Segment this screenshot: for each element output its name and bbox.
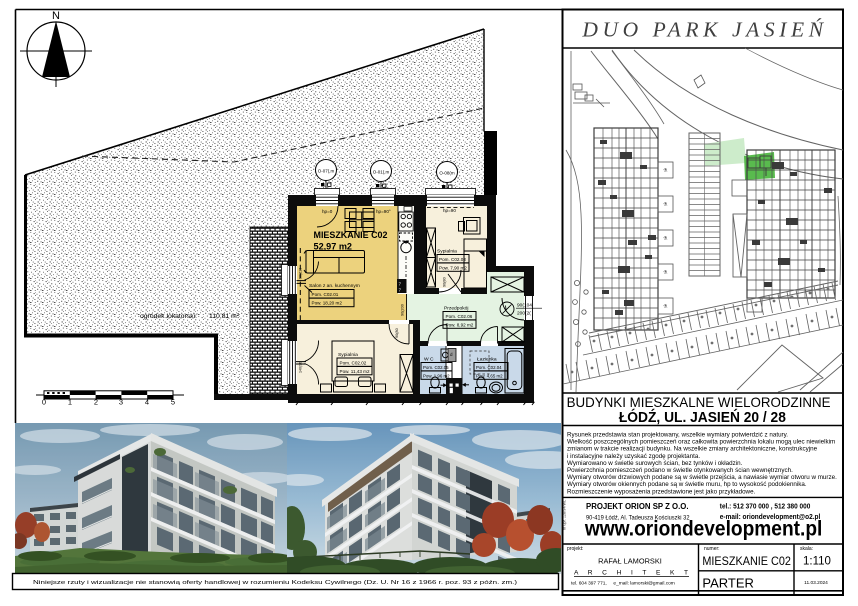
svg-text:Niniejsze rzuty i wizualizacje: Niniejsze rzuty i wizualizacje nie stano… xyxy=(33,580,517,586)
svg-text:Pom. C02.06: Pom. C02.06 xyxy=(446,314,473,319)
svg-text:Pow. 18,20 m2: Pow. 18,20 m2 xyxy=(312,301,343,306)
svg-text:1:110: 1:110 xyxy=(803,556,831,568)
svg-text:5: 5 xyxy=(171,398,175,407)
svg-text:110,81 m²: 110,81 m² xyxy=(209,313,240,320)
svg-text:www.oriondevelopment.pl: www.oriondevelopment.pl xyxy=(584,518,822,541)
svg-text:tel.: 512 370 000 , 512 380 00: tel.: 512 370 000 , 512 380 000 xyxy=(720,502,811,511)
svg-text:PARTER: PARTER xyxy=(702,576,754,591)
svg-text:52,97 m2: 52,97 m2 xyxy=(314,242,353,252)
svg-text:Powierzchnia pomieszczeń podan: Powierzchnia pomieszczeń podano w świetl… xyxy=(567,467,793,474)
svg-text:200(2(: 200(2( xyxy=(517,311,531,317)
svg-text:MIESZKANIE C02: MIESZKANIE C02 xyxy=(702,554,791,568)
svg-text:1: 1 xyxy=(68,398,72,407)
svg-text:hp=90: hp=90 xyxy=(443,208,456,213)
svg-text:⚗: ⚗ xyxy=(663,304,668,310)
svg-text:140(90: 140(90 xyxy=(299,362,303,373)
svg-text:Sypialnia: Sypialnia xyxy=(338,352,358,358)
svg-text:i instalacyjne należy uzyskać: i instalacyjne należy uzyskać zgodę proj… xyxy=(567,453,700,460)
svg-text:Wymiarowano w świetle surowych: Wymiarowano w świetle surowych ścian, be… xyxy=(567,460,743,467)
svg-text:W C: W C xyxy=(424,357,434,363)
svg-text:Pom. C02.02: Pom. C02.02 xyxy=(340,361,367,366)
svg-text:11.03.2024: 11.03.2024 xyxy=(804,580,828,586)
svg-text:Pow. 11,43 m2: Pow. 11,43 m2 xyxy=(340,369,370,374)
svg-text:0: 0 xyxy=(42,398,46,407)
svg-text:O-08(m: O-08(m xyxy=(439,171,455,176)
svg-text:Pow. 7,90 m2: Pow. 7,90 m2 xyxy=(439,265,467,270)
svg-text:O-07(,m: O-07(,m xyxy=(318,169,335,174)
svg-text:A R C H I T E K T: A R C H I T E K T xyxy=(574,570,688,577)
svg-text:Pom. C02.05: Pom. C02.05 xyxy=(423,365,449,370)
svg-text:⚗: ⚗ xyxy=(663,236,668,242)
svg-text:O-01(,m: O-01(,m xyxy=(373,170,390,175)
svg-text:Pom. C02.01: Pom. C02.01 xyxy=(312,292,339,297)
svg-text:Przedpokój: Przedpokój xyxy=(444,306,468,312)
svg-text:skala:: skala: xyxy=(800,546,813,552)
svg-text:RAFAŁ LAMORSKI: RAFAŁ LAMORSKI xyxy=(598,557,662,566)
svg-text:PROJEKT ORION SP Z O.O.: PROJEKT ORION SP Z O.O. xyxy=(586,501,689,511)
svg-text:zmianom w trakcie realizacji b: zmianom w trakcie realizacji budynku. Na… xyxy=(567,446,818,453)
svg-text:numer:: numer: xyxy=(704,546,720,552)
svg-text:Wielkość poszczególnych pomies: Wielkość poszczególnych pomieszczeń oraz… xyxy=(567,439,835,446)
svg-text:⚗: ⚗ xyxy=(663,202,668,208)
svg-text:N: N xyxy=(52,10,60,22)
svg-text:BUDYNKI MIESZKALNE WIELORODZIN: BUDYNKI MIESZKALNE WIELORODZINNE xyxy=(567,394,831,410)
svg-text:hp=90°: hp=90° xyxy=(376,209,391,214)
svg-text:DUO PARK JASIEŃ: DUO PARK JASIEŃ xyxy=(581,18,827,42)
svg-text:Pom. C02.03: Pom. C02.03 xyxy=(439,257,466,262)
svg-text:nr upr. 128/94/WL: nr upr. 128/94/WL xyxy=(563,500,567,530)
svg-text:2: 2 xyxy=(94,398,98,407)
svg-text:projekt:: projekt: xyxy=(567,546,583,552)
svg-text:4: 4 xyxy=(145,398,149,407)
svg-text:Sypialnia: Sypialnia xyxy=(437,249,457,255)
svg-text:90(80: 90(80 xyxy=(395,328,399,338)
svg-text:Wymiary otworów okiennych poda: Wymiary otworów okiennych podane są w św… xyxy=(567,481,807,488)
svg-text:MIESZKANIE C02: MIESZKANIE C02 xyxy=(314,230,388,240)
svg-text:Pow. 4,65 m2: Pow. 4,65 m2 xyxy=(476,373,503,378)
svg-text:Rozmieszczenie wyposażenia prz: Rozmieszczenie wyposażenia przedstawione… xyxy=(567,488,756,495)
svg-text:⚗: ⚗ xyxy=(663,168,668,174)
svg-text:Rysunek przedstawia stan proje: Rysunek przedstawia stan projektowany, w… xyxy=(567,432,788,439)
svg-text:Salon z an. kuchennym: Salon z an. kuchennym xyxy=(309,283,360,289)
svg-text:Pow. 8,92 m2: Pow. 8,92 m2 xyxy=(446,322,474,327)
svg-text:tel. 604 397 771, e_mail:: tel. 604 397 771, e_mail: lamorski@gmail… xyxy=(571,581,675,587)
svg-text:90(200: 90(200 xyxy=(401,304,405,316)
svg-text:Pom. C02.04: Pom. C02.04 xyxy=(476,365,502,370)
svg-text:ŁÓDŹ, UL. JASIEŃ 20 / 28: ŁÓDŹ, UL. JASIEŃ 20 / 28 xyxy=(619,408,786,426)
svg-text:90(80: 90(80 xyxy=(443,277,447,287)
svg-text:⚗: ⚗ xyxy=(663,270,668,276)
svg-text:Wymiary otworów drzwiowych pod: Wymiary otworów drzwiowych podane są w ś… xyxy=(567,474,837,481)
svg-text:3: 3 xyxy=(119,398,123,407)
svg-text:90(104: 90(104 xyxy=(517,303,532,309)
svg-text:Łazienka: Łazienka xyxy=(477,357,497,363)
svg-text:hp=0: hp=0 xyxy=(322,209,333,214)
svg-text:ogródek lokatorski:: ogródek lokatorski: xyxy=(140,313,197,320)
